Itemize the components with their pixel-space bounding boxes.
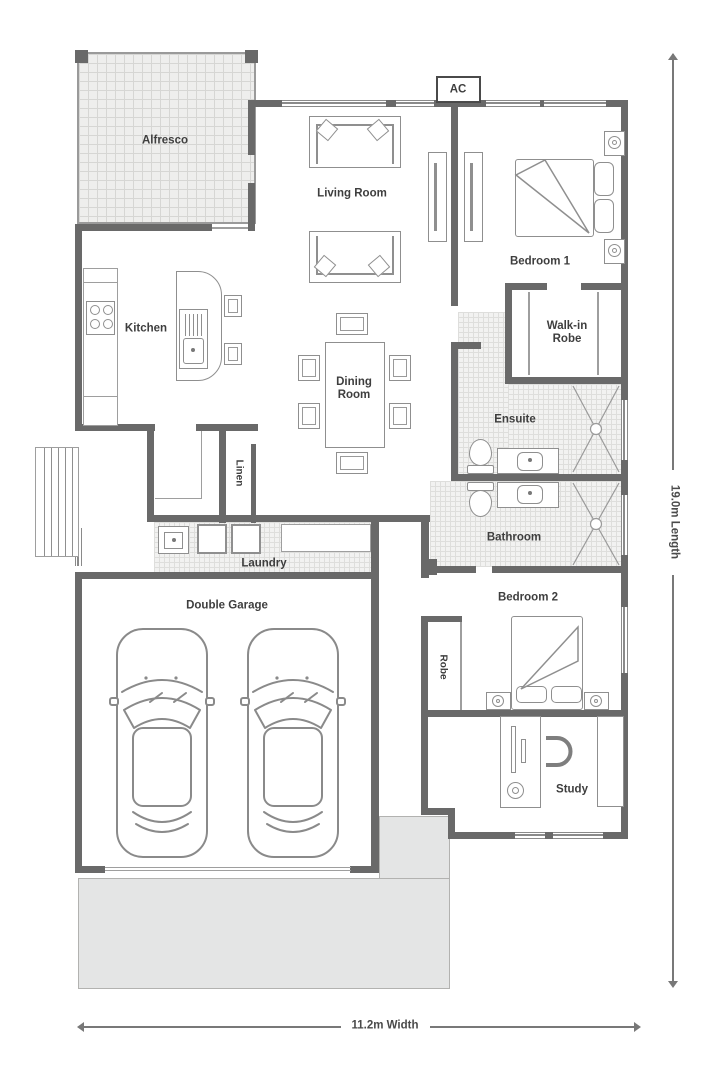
dining-chair — [336, 313, 368, 335]
water-tank — [35, 447, 79, 557]
room-label-bedroom2: Bedroom 2 — [498, 592, 558, 605]
toilet-tank — [467, 465, 494, 474]
hall-cupboard — [464, 152, 483, 242]
bedside-lamp — [612, 248, 617, 253]
study-chair — [546, 738, 571, 765]
wall-garage-bottom — [75, 866, 105, 873]
wall-alfresco-right — [248, 100, 255, 155]
floor-plan: Alfresco Living Room Kitchen Dining Room… — [0, 0, 727, 1080]
drainer-line — [189, 314, 190, 336]
room-label-alfresco: Alfresco — [142, 135, 188, 148]
bench-divider — [84, 396, 117, 397]
tap-dot — [528, 491, 532, 495]
wall-alfresco-bottom-thin — [212, 227, 248, 229]
dim-arrow-up — [668, 48, 678, 60]
wall-laundry-right — [371, 515, 379, 873]
fridge-nook-line — [201, 431, 202, 499]
window — [486, 100, 540, 107]
porch-path — [379, 816, 450, 880]
tap-dot — [528, 458, 532, 462]
bedside-lamp — [496, 699, 500, 703]
window — [544, 100, 606, 107]
wall-ensuite-bathroom — [455, 474, 628, 481]
wall-linen-right — [251, 444, 256, 523]
wall-living-bed1 — [451, 100, 458, 306]
wall-bed1-bottom — [581, 283, 628, 290]
room-label-living: Living Room — [317, 188, 387, 201]
tap-dot — [191, 348, 195, 352]
window — [621, 607, 628, 673]
tank-line — [65, 448, 66, 556]
robe-rail — [528, 292, 530, 375]
cooktop-burner — [90, 319, 100, 329]
wall-wir-left — [505, 283, 512, 384]
width-dimension-label: 11.2m Width — [352, 1020, 419, 1033]
kitchen-stool — [224, 343, 242, 365]
room-label-robe: Robe — [437, 655, 448, 680]
length-dim-line — [672, 54, 674, 470]
dryer — [231, 524, 261, 554]
room-label-bathroom: Bathroom — [487, 532, 541, 545]
cooktop-burner — [103, 305, 113, 315]
dim-arrow-down — [668, 981, 678, 993]
wall-garage-left — [75, 572, 82, 873]
car — [110, 629, 214, 857]
bathroom-shower-floor — [571, 481, 621, 567]
wall-laundry-top — [147, 515, 430, 522]
tank-line — [44, 448, 45, 556]
wall-alfresco-bottom — [75, 224, 212, 231]
room-label-ensuite: Ensuite — [494, 414, 536, 427]
wall-alfresco-post — [245, 50, 258, 63]
robe-rail — [597, 292, 599, 375]
cooktop-burner — [103, 319, 113, 329]
fridge-nook-line — [155, 498, 201, 499]
car — [241, 629, 345, 857]
kitchen-stool — [224, 295, 242, 317]
wall-garage-top — [75, 572, 379, 579]
laundry-bench — [281, 524, 371, 552]
pillow — [594, 199, 614, 233]
tank-line — [72, 448, 73, 556]
wall-linen-left — [219, 424, 226, 523]
drainer-line — [193, 314, 194, 336]
dim-arrow-right — [634, 1022, 646, 1032]
garage-door-line — [105, 867, 351, 868]
wall-wir-bottom — [505, 377, 628, 384]
length-dimension-label: 19.0m Length — [668, 485, 681, 559]
dining-chair — [298, 355, 320, 381]
wall-hall-stub — [451, 342, 481, 349]
room-label-kitchen: Kitchen — [125, 323, 167, 336]
bed — [515, 159, 594, 237]
window — [396, 100, 434, 107]
ensuite-shower-floor — [571, 384, 621, 474]
garage-door-line — [105, 870, 351, 871]
bench-divider — [84, 282, 117, 283]
window — [621, 495, 628, 555]
sofa-arm — [392, 236, 394, 275]
wall-linen-top — [196, 424, 258, 431]
wall-bathroom-bottom — [434, 566, 476, 573]
window — [621, 400, 628, 460]
length-dim-line — [672, 575, 674, 986]
wall-left — [75, 224, 82, 431]
dining-chair — [298, 403, 320, 429]
tv-unit — [428, 152, 447, 242]
cooktop-burner — [90, 305, 100, 315]
hall-cupboard-line — [470, 163, 473, 231]
kitchen-bench — [83, 268, 118, 426]
toilet-bowl — [469, 439, 492, 466]
room-label-laundry: Laundry — [241, 558, 286, 571]
tank-line — [51, 448, 52, 556]
wall-alfresco-post — [75, 50, 88, 63]
dining-chair — [389, 355, 411, 381]
stool — [512, 787, 519, 794]
wall-hall-ensuite — [451, 342, 458, 481]
room-label-garage: Double Garage — [186, 600, 268, 613]
ac-label: AC — [450, 84, 467, 97]
washer — [197, 524, 227, 554]
sofa-arm — [392, 124, 394, 164]
room-label-dining: Dining Room — [328, 376, 380, 402]
dining-chair — [336, 452, 368, 474]
room-label-bedroom1: Bedroom 1 — [510, 256, 570, 269]
dining-chair — [389, 403, 411, 429]
tap-dot — [172, 538, 176, 542]
window — [282, 100, 386, 107]
width-dim-line — [430, 1026, 637, 1028]
drainer-line — [185, 314, 186, 336]
tv-unit-line — [434, 163, 437, 231]
study-shelf — [597, 716, 624, 807]
monitor-stand — [521, 739, 526, 763]
driveway — [78, 878, 450, 989]
bedside-lamp — [594, 699, 598, 703]
window — [515, 832, 545, 839]
wall-kitchen-side — [147, 424, 154, 522]
drainer-line — [201, 314, 202, 336]
dim-arrow-left — [72, 1022, 84, 1032]
pillow — [594, 162, 614, 196]
bedside-lamp — [612, 140, 617, 145]
room-label-study: Study — [556, 784, 588, 797]
pillow — [551, 686, 582, 703]
wall-bathroom-bottom — [492, 566, 628, 573]
monitor — [511, 726, 516, 773]
room-label-wir: Walk-in Robe — [538, 320, 596, 346]
width-dim-line — [79, 1026, 341, 1028]
drainer-line — [197, 314, 198, 336]
room-label-linen: Linen — [233, 460, 244, 487]
wall-alfresco-right — [248, 183, 255, 231]
robe-front-line — [460, 622, 462, 710]
pillow — [516, 686, 547, 703]
tank-line — [58, 448, 59, 556]
window — [553, 832, 603, 839]
wall-garage-bottom — [350, 866, 379, 873]
